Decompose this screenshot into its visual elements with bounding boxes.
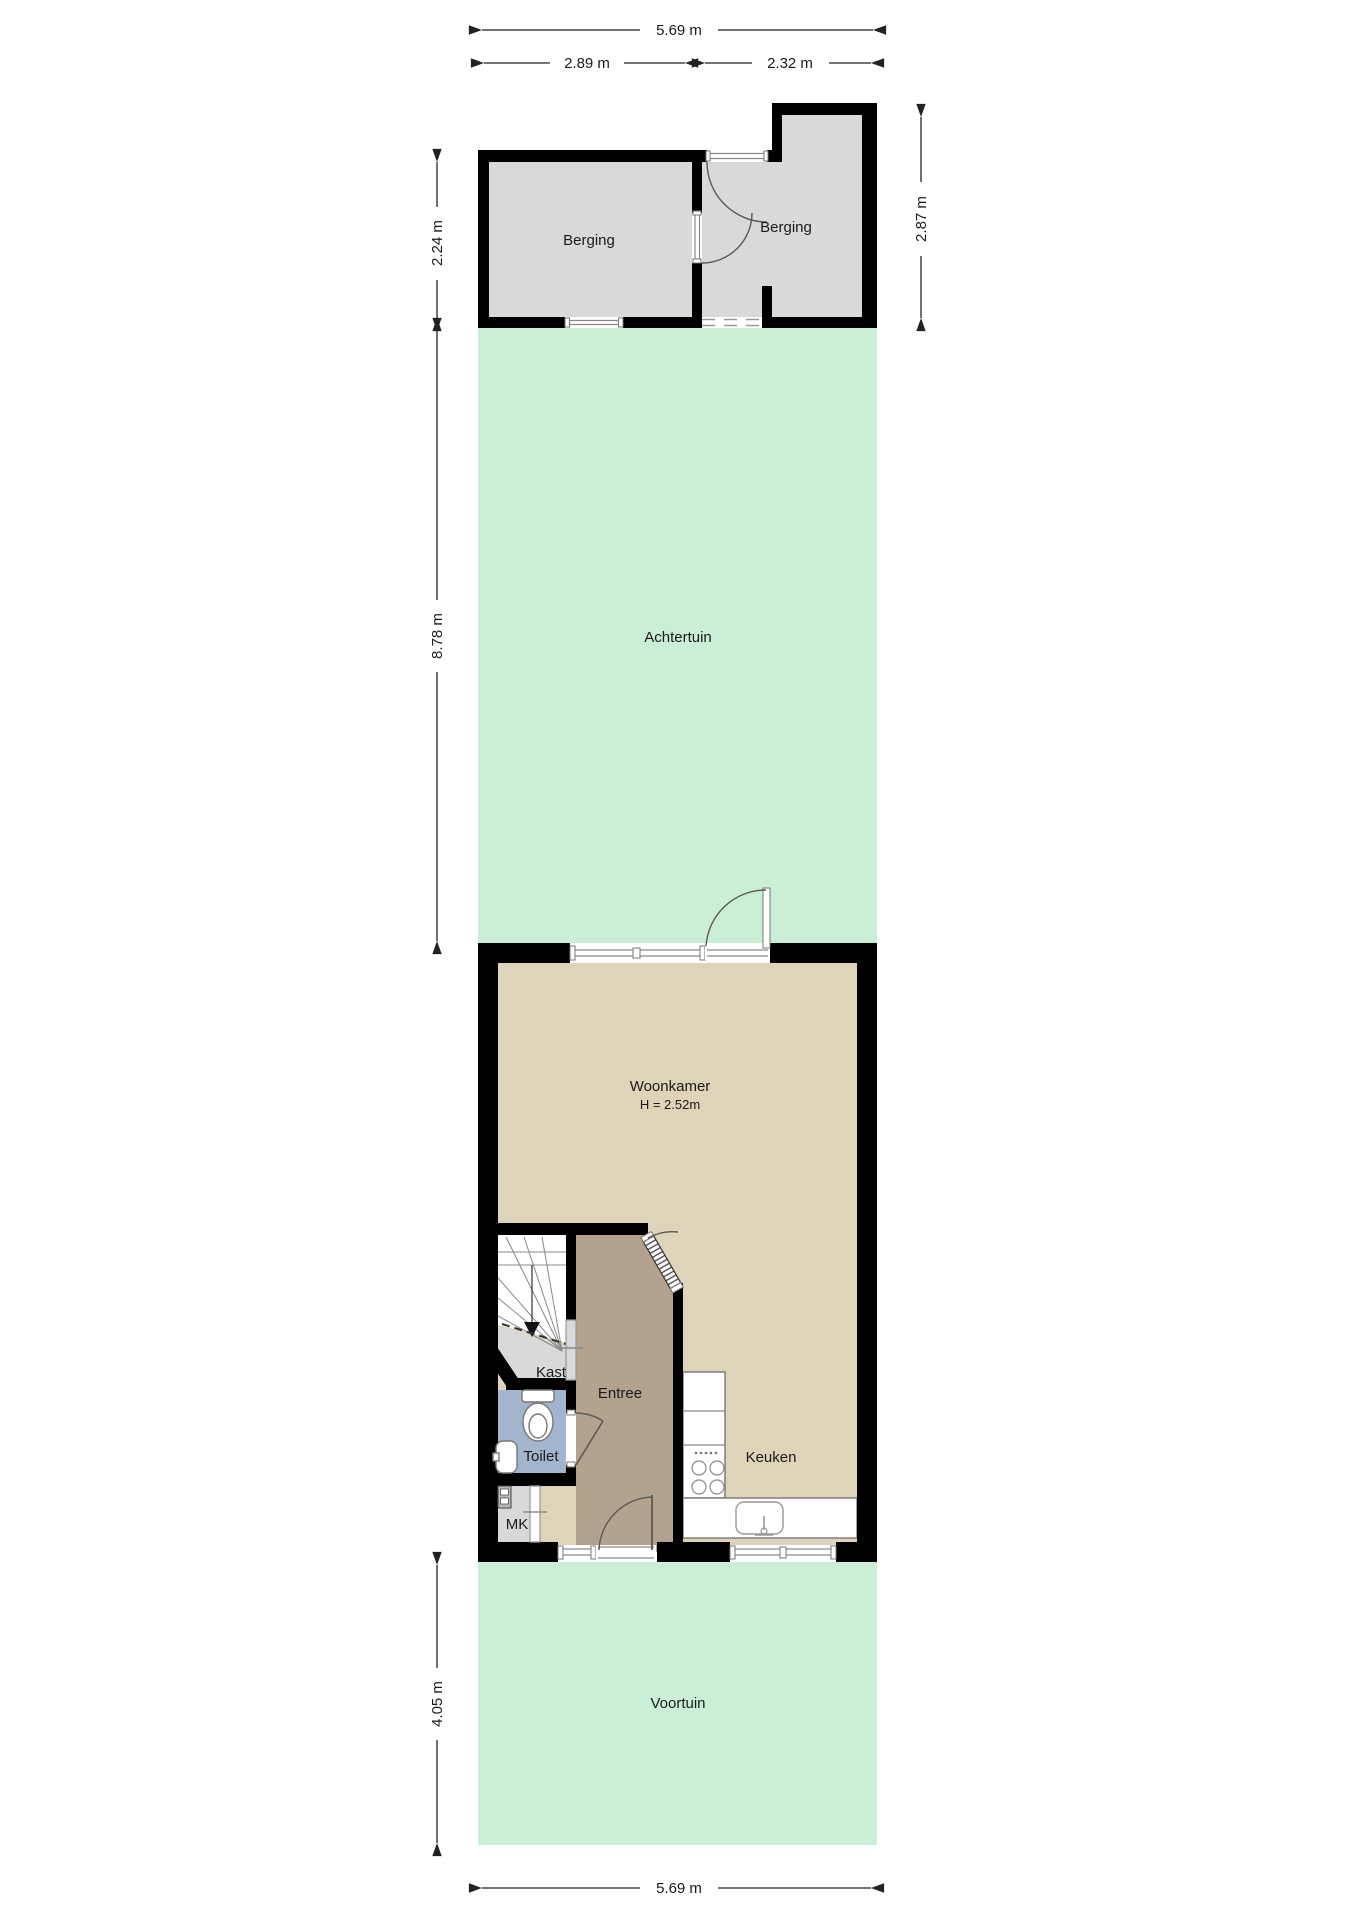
label-mk: MK <box>506 1516 529 1533</box>
dim-top-left: 2.89 m <box>484 55 685 72</box>
label-voortuin: Voortuin <box>650 1695 705 1712</box>
dim-voortuin-depth: 4.05 m <box>429 1565 446 1843</box>
meter-box-icon <box>498 1486 511 1508</box>
svg-text:8.78 m: 8.78 m <box>429 613 446 659</box>
svg-text:2.32 m: 2.32 m <box>767 55 813 72</box>
label-entree: Entree <box>598 1385 642 1402</box>
label-berging-right: Berging <box>760 219 812 236</box>
label-kast: Kast <box>536 1364 567 1381</box>
toilet-fixture-icon <box>522 1390 554 1441</box>
label-berging-left: Berging <box>563 232 615 249</box>
label-woonkamer-height: H = 2.52m <box>640 1097 700 1112</box>
svg-text:2.89 m: 2.89 m <box>564 55 610 72</box>
svg-text:5.69 m: 5.69 m <box>656 22 702 39</box>
kitchen-window <box>730 1545 836 1560</box>
label-toilet: Toilet <box>523 1448 559 1465</box>
svg-text:2.87 m: 2.87 m <box>913 196 930 242</box>
hand-basin-icon <box>493 1441 517 1473</box>
berging-window <box>565 317 623 328</box>
living-room-window <box>570 946 705 960</box>
svg-text:4.05 m: 4.05 m <box>429 1681 446 1727</box>
svg-text:5.69 m: 5.69 m <box>656 1880 702 1897</box>
dim-berging-depth: 2.24 m <box>429 162 446 318</box>
label-woonkamer: Woonkamer <box>630 1078 711 1095</box>
dim-achtertuin-depth: 8.78 m <box>429 331 446 941</box>
svg-text:2.24 m: 2.24 m <box>429 220 446 266</box>
floor-plan: Berging Berging Achtertuin Woonkamer H =… <box>0 0 1358 1920</box>
dim-top-right: 2.32 m <box>705 55 871 72</box>
berging-passage-dashed <box>702 317 762 328</box>
label-keuken: Keuken <box>746 1449 797 1466</box>
label-achtertuin: Achtertuin <box>644 629 712 646</box>
front-window <box>558 1545 596 1560</box>
dim-berging-right-depth: 2.87 m <box>913 117 930 318</box>
dim-top-total: 5.69 m <box>482 22 873 39</box>
dim-bottom-total: 5.69 m <box>482 1880 871 1897</box>
